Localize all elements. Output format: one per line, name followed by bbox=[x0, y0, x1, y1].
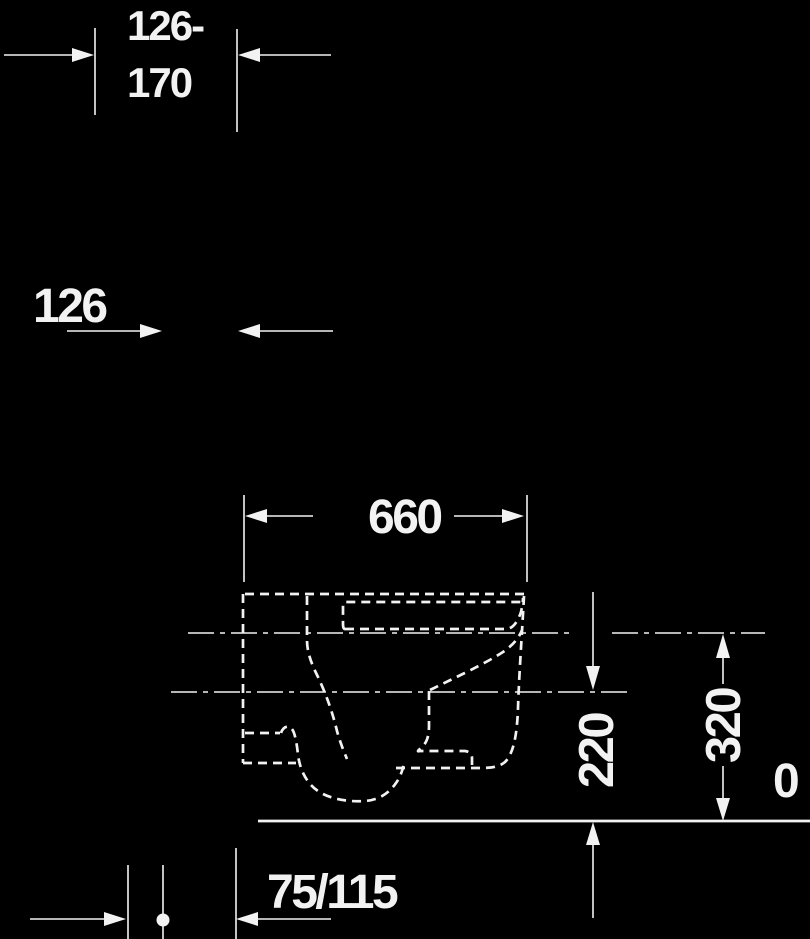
seat-inner-top bbox=[343, 602, 521, 629]
dimension-label-outlet-distance: 75/115 bbox=[267, 866, 398, 919]
trap-curve bbox=[281, 727, 404, 802]
arrow-right-icon bbox=[104, 912, 126, 926]
front-shell-edge bbox=[394, 596, 524, 768]
arrow-up-icon bbox=[716, 634, 730, 658]
drawing-stage: 126- 170 126 660 bbox=[0, 0, 810, 939]
arrow-down-icon bbox=[716, 798, 730, 821]
arrow-right-icon bbox=[140, 324, 162, 338]
technical-drawing: 126- 170 126 660 bbox=[0, 0, 810, 939]
dimension-outlet-height-220: 220 bbox=[570, 592, 624, 918]
dimension-offset-126: 126 bbox=[33, 280, 333, 338]
dimension-label-inlet-height: 320 bbox=[697, 688, 751, 764]
dimension-inlet-height-320: 320 0 bbox=[697, 634, 798, 821]
dimension-label-range-bottom: 170 bbox=[127, 59, 192, 106]
arrow-up-icon bbox=[586, 822, 600, 845]
dimension-label-offset: 126 bbox=[33, 280, 106, 333]
dimension-outlet-distance-75-115: 75/115 bbox=[30, 848, 398, 939]
dimension-width-660: 660 bbox=[244, 491, 527, 582]
bowl-rear-wall bbox=[307, 596, 347, 759]
dimension-label-range-top: 126- bbox=[127, 2, 204, 49]
dimension-label-outlet-height: 220 bbox=[570, 713, 624, 789]
bowl-rim-curve bbox=[430, 630, 522, 690]
dimension-label-width: 660 bbox=[368, 491, 441, 544]
arrow-left-icon bbox=[245, 509, 267, 523]
arrow-left-icon bbox=[238, 48, 260, 62]
floor-zero-label: 0 bbox=[773, 755, 798, 808]
arrow-right-icon bbox=[72, 48, 94, 62]
arrow-left-icon bbox=[236, 912, 258, 926]
axis-lines bbox=[171, 633, 765, 692]
arrow-right-icon bbox=[502, 509, 524, 523]
toilet-outline bbox=[243, 594, 524, 801]
arrow-left-icon bbox=[238, 324, 260, 338]
outlet-channel bbox=[418, 691, 472, 765]
arrow-down-icon bbox=[586, 666, 600, 690]
dimension-range-126-170: 126- 170 bbox=[4, 2, 331, 132]
seat-inner-bottom bbox=[345, 598, 523, 629]
pipe-axis-dot bbox=[157, 914, 170, 927]
